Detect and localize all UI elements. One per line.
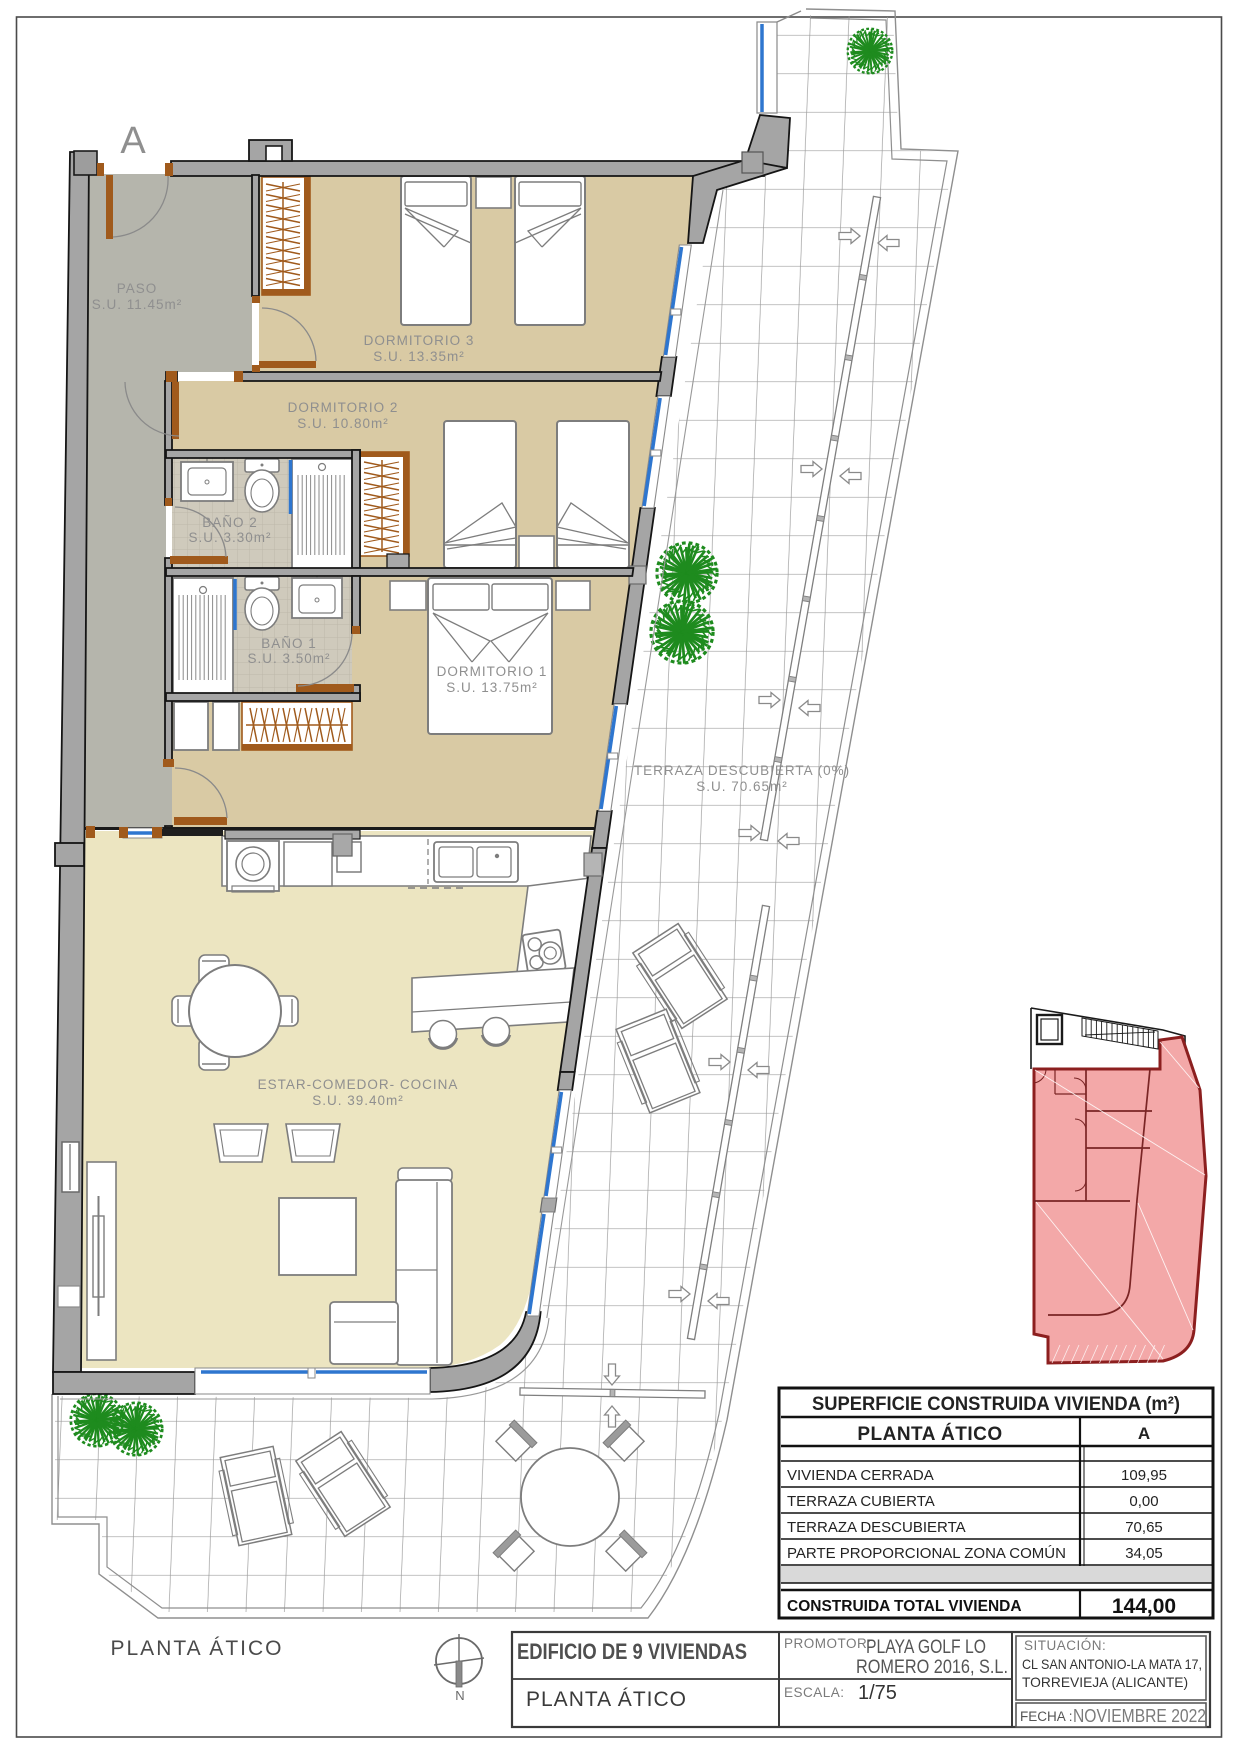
- svg-text:TERRAZA DESCUBIERTA: TERRAZA DESCUBIERTA: [787, 1519, 966, 1536]
- svg-text:S.U. 13.35m²: S.U. 13.35m²: [373, 349, 465, 364]
- svg-text:EDIFICIO DE 9 VIVIENDAS: EDIFICIO DE 9 VIVIENDAS: [517, 1639, 747, 1664]
- svg-text:A: A: [120, 120, 146, 162]
- svg-text:0,00: 0,00: [1129, 1493, 1158, 1510]
- svg-text:SITUACIÓN:: SITUACIÓN:: [1024, 1638, 1106, 1653]
- svg-text:PLAYA GOLF LO: PLAYA GOLF LO: [866, 1636, 986, 1658]
- svg-text:TERRAZA CUBIERTA: TERRAZA CUBIERTA: [787, 1493, 935, 1510]
- svg-text:S.U. 10.80m²: S.U. 10.80m²: [297, 416, 389, 431]
- svg-text:PARTE PROPORCIONAL ZONA COMÚN: PARTE PROPORCIONAL ZONA COMÚN: [787, 1545, 1066, 1562]
- svg-text:CL SAN ANTONIO-LA MATA 17,: CL SAN ANTONIO-LA MATA 17,: [1022, 1657, 1202, 1672]
- svg-text:NOVIEMBRE 2022: NOVIEMBRE 2022: [1073, 1705, 1206, 1726]
- svg-text:70,65: 70,65: [1125, 1519, 1163, 1536]
- svg-text:VIVIENDA CERRADA: VIVIENDA CERRADA: [787, 1467, 934, 1484]
- svg-text:TORREVIEJA (ALICANTE): TORREVIEJA (ALICANTE): [1022, 1675, 1188, 1690]
- svg-text:BAÑO 2: BAÑO 2: [202, 515, 258, 530]
- svg-text:A: A: [1138, 1424, 1150, 1443]
- svg-text:ROMERO 2016, S.L.: ROMERO 2016, S.L.: [856, 1656, 1008, 1678]
- svg-text:N: N: [455, 1688, 464, 1703]
- svg-text:109,95: 109,95: [1121, 1467, 1167, 1484]
- svg-text:PLANTA ÁTICO: PLANTA ÁTICO: [111, 1637, 284, 1660]
- svg-text:PLANTA ÁTICO: PLANTA ÁTICO: [857, 1423, 1002, 1445]
- svg-text:S.U. 39.40m²: S.U. 39.40m²: [312, 1093, 404, 1108]
- svg-text:S.U. 3.30m²: S.U. 3.30m²: [188, 530, 271, 545]
- svg-text:PLANTA ÁTICO: PLANTA ÁTICO: [526, 1688, 687, 1711]
- svg-text:S.U. 11.45m²: S.U. 11.45m²: [92, 297, 183, 312]
- svg-text:SUPERFICIE CONSTRUIDA VIVIEND: SUPERFICIE CONSTRUIDA VIVIENDA (m²): [812, 1394, 1180, 1415]
- svg-text:DORMITORIO 2: DORMITORIO 2: [288, 400, 399, 415]
- svg-text:CONSTRUIDA TOTAL VIVIENDA: CONSTRUIDA TOTAL VIVIENDA: [787, 1598, 1022, 1615]
- svg-text:ESTAR-COMEDOR- COCINA: ESTAR-COMEDOR- COCINA: [258, 1077, 459, 1092]
- svg-text:144,00: 144,00: [1112, 1595, 1176, 1618]
- svg-text:S.U. 3.50m²: S.U. 3.50m²: [247, 651, 330, 666]
- svg-text:BAÑO 1: BAÑO 1: [261, 636, 317, 651]
- svg-text:1/75: 1/75: [858, 1682, 897, 1704]
- svg-text:PASO: PASO: [117, 281, 158, 296]
- svg-text:FECHA :: FECHA :: [1020, 1709, 1073, 1724]
- svg-text:S.U. 13.75m²: S.U. 13.75m²: [446, 680, 538, 695]
- svg-text:DORMITORIO 1: DORMITORIO 1: [437, 664, 548, 679]
- svg-text:ESCALA:: ESCALA:: [784, 1685, 845, 1700]
- svg-text:DORMITORIO 3: DORMITORIO 3: [364, 333, 475, 348]
- svg-text:S.U. 70.65m²: S.U. 70.65m²: [696, 779, 788, 794]
- svg-text:TERRAZA DESCUBIERTA (0%): TERRAZA DESCUBIERTA (0%): [634, 763, 850, 778]
- svg-text:34,05: 34,05: [1125, 1545, 1163, 1562]
- svg-text:PROMOTOR:: PROMOTOR:: [784, 1636, 872, 1651]
